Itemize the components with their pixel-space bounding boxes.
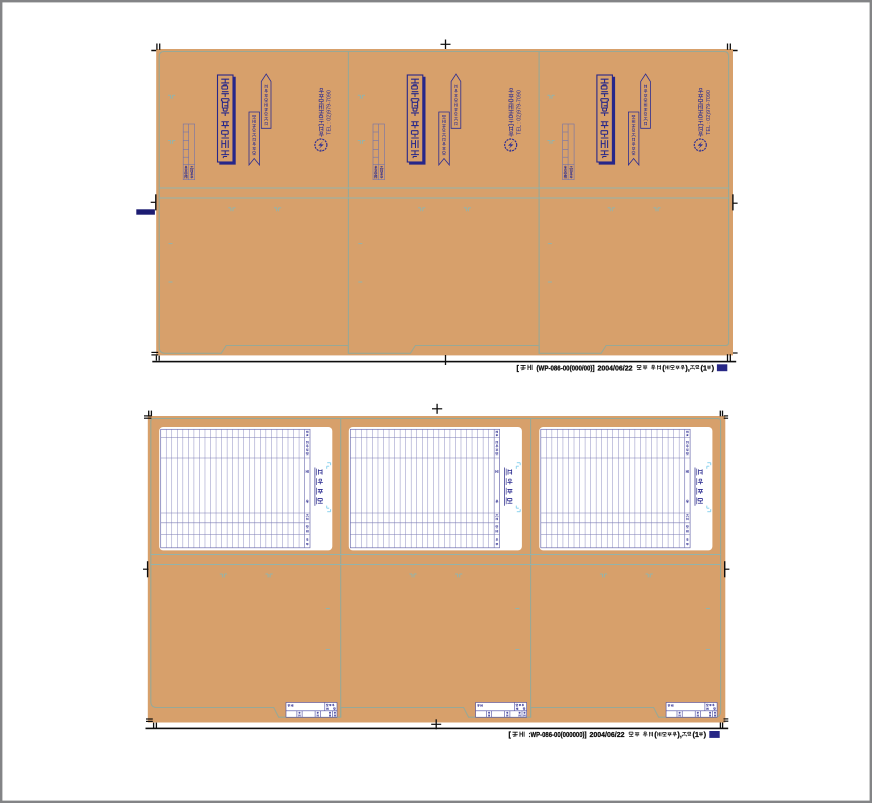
svg-text:2004/06/22: 2004/06/22 — [598, 363, 633, 372]
svg-text:),: ), — [677, 730, 681, 739]
svg-text:(WP-086-00(000/00)]: (WP-086-00(000/00)] — [537, 363, 595, 372]
svg-text:TEL : 02)979-7090: TEL : 02)979-7090 — [327, 90, 333, 135]
svg-text:2004/06/22: 2004/06/22 — [590, 730, 625, 739]
svg-text:(1: (1 — [700, 363, 707, 372]
svg-text:TEL : 02)979-7090: TEL : 02)979-7090 — [516, 90, 522, 135]
svg-text:),: ), — [685, 363, 689, 372]
svg-text::WP-086-00(000000)]: :WP-086-00(000000)] — [529, 730, 587, 739]
svg-text:(1: (1 — [692, 730, 699, 739]
svg-text:TEL : 02)979-7090: TEL : 02)979-7090 — [706, 90, 712, 135]
